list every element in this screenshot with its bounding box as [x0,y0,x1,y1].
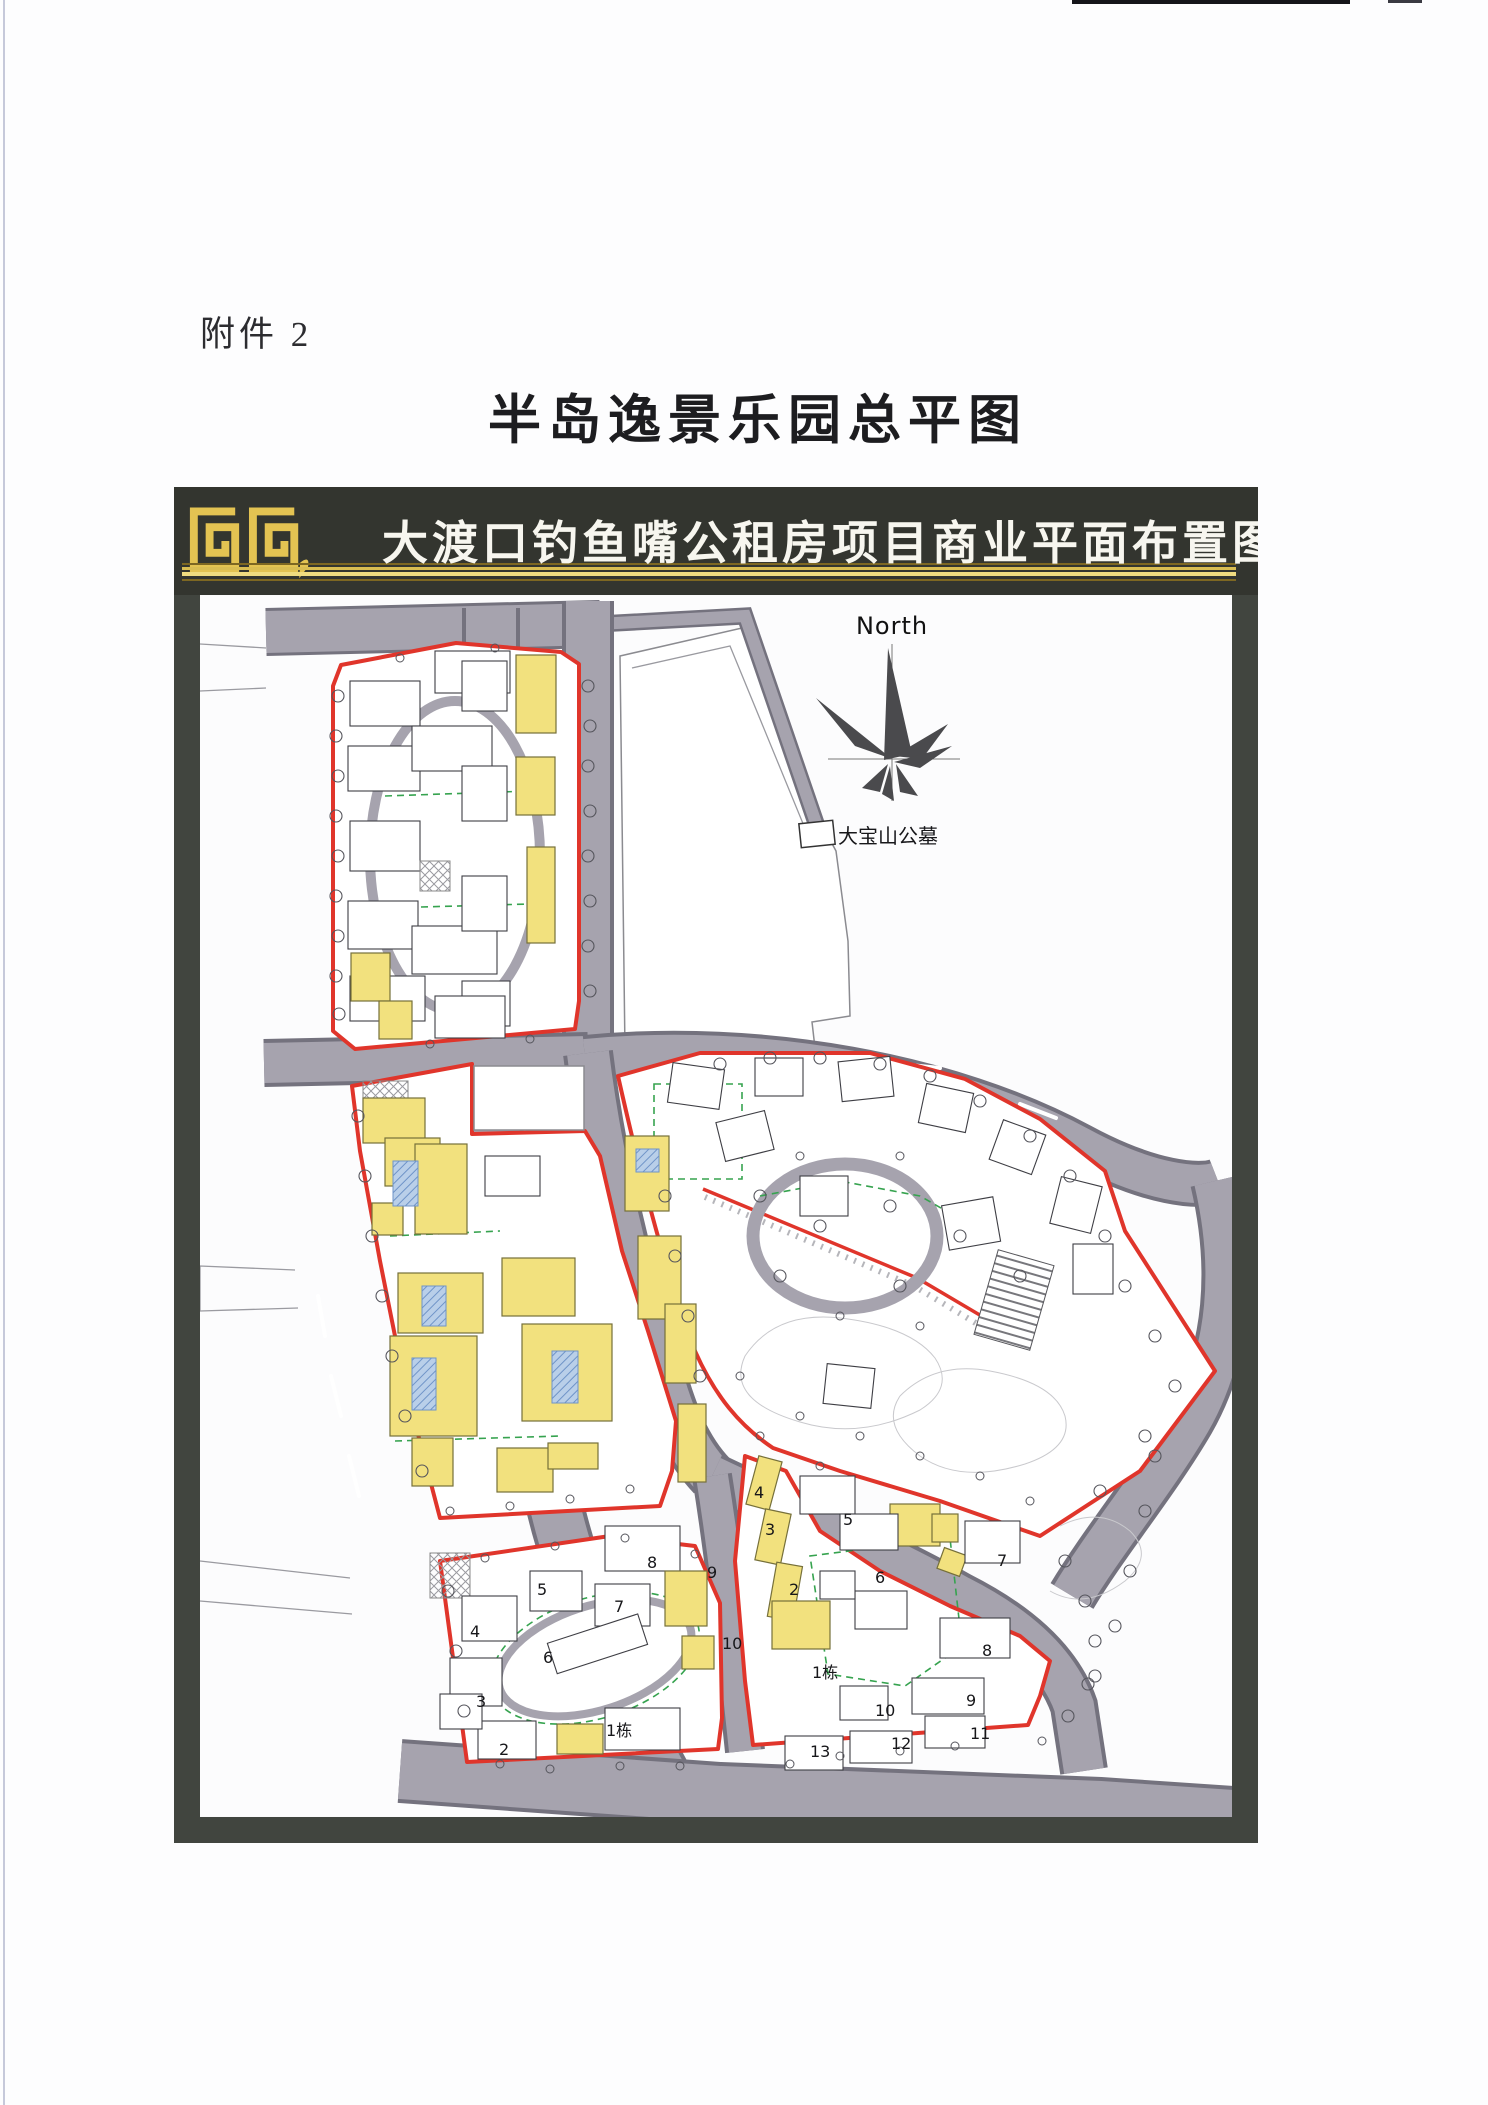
building-label: 4 [470,1622,480,1641]
banner-gold-line [182,579,1236,581]
building-label: 5 [537,1580,547,1599]
site-plan-map: North 大宝山公墓 8 5 9 7 4 6 3 10 1栋 2 4 3 5 … [200,595,1232,1817]
page-title: 半岛逸景乐园总平图 [488,378,1028,454]
building-label: 7 [614,1597,624,1616]
notch-parcel [474,1066,584,1130]
building-label: 2 [789,1580,799,1599]
building-label: 1栋 [606,1721,632,1740]
scan-artifact-top-line [1072,0,1350,4]
building-label: 6 [543,1648,553,1667]
banner-title: 大渡口钓鱼嘴公租房项目商业平面布置图 [382,507,1258,573]
building-label: 13 [810,1742,830,1761]
cemetery-building [799,820,835,847]
building-label: 10 [722,1634,742,1653]
figure-banner: 大渡口钓鱼嘴公租房项目商业平面布置图 [174,487,1258,595]
building-label: 8 [647,1553,657,1572]
building-label: 9 [966,1691,976,1710]
scan-artifact-left-line [3,0,5,2105]
building-label: 9 [707,1563,717,1582]
north-label: North [856,612,928,640]
building-label: 10 [875,1701,895,1720]
building-label: 1栋 [812,1663,838,1682]
attachment-label: 附件 2 [200,306,312,357]
building-label: 4 [754,1483,764,1502]
scanned-document-page: { "page": { "attachment_label": "附件 2", … [0,0,1488,2105]
site-plan-figure: 大渡口钓鱼嘴公租房项目商业平面布置图 [174,487,1258,1843]
building-label: 6 [875,1568,885,1587]
scan-artifact-top-tick [1388,0,1422,3]
cemetery-label: 大宝山公墓 [838,824,938,848]
map-frame: North 大宝山公墓 8 5 9 7 4 6 3 10 1栋 2 4 3 5 … [174,595,1258,1843]
building-label: 3 [765,1520,775,1539]
building-label: 8 [982,1641,992,1660]
building-label: 2 [499,1740,509,1759]
building-label: 11 [970,1724,990,1743]
building-label: 12 [891,1734,911,1753]
building-label: 5 [843,1510,853,1529]
building-label: 3 [476,1692,486,1711]
building-label: 7 [997,1551,1007,1570]
